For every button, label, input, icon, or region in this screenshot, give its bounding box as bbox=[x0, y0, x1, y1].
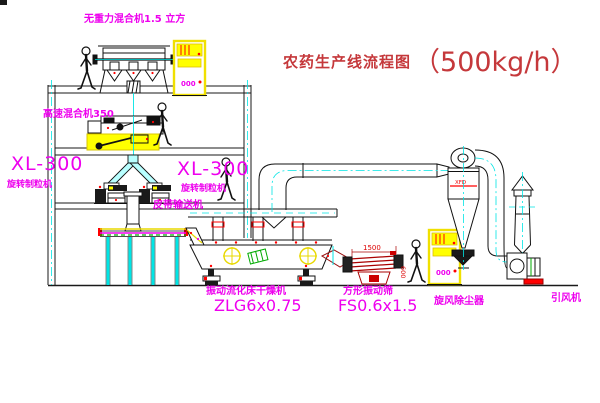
granulator-left-drawing bbox=[94, 185, 128, 204]
dryer-mount-right bbox=[298, 269, 315, 285]
y-chute bbox=[104, 155, 162, 189]
person-roof bbox=[78, 47, 95, 89]
fluid-bed-dryer-drawing bbox=[186, 217, 332, 269]
belt-conveyor-drawing bbox=[98, 228, 188, 285]
label-dryer-model: ZLG6x0.75 bbox=[214, 298, 302, 314]
screen-dim-length: 1500 bbox=[363, 244, 381, 252]
cyclone-drawing bbox=[448, 146, 479, 270]
high-speed-mixer-drawing bbox=[87, 116, 163, 150]
label-granulator-right-model: XL-300 bbox=[177, 160, 249, 179]
discharge-chute bbox=[124, 192, 142, 231]
exhaust-stack bbox=[509, 172, 536, 262]
label-granulator-left-model: XL-300 bbox=[11, 155, 83, 174]
cabinet-2-text: 000 bbox=[436, 269, 451, 277]
dryer-mount-left bbox=[203, 269, 220, 285]
label-granulator-right-name: 旋转制粒机 bbox=[181, 185, 226, 194]
flow-diagram-canvas: 000 000 bbox=[0, 0, 600, 403]
screen-dim-height: 600 bbox=[399, 266, 407, 278]
label-gravity-mixer: 无重力混合机1.5 立方 bbox=[84, 15, 185, 25]
title-text: 农药生产线流程图 bbox=[283, 51, 411, 72]
corner-mark bbox=[0, 0, 7, 5]
person-ground bbox=[408, 240, 425, 282]
label-fan: 引风机 bbox=[551, 294, 581, 304]
label-granulator-left-name: 旋转制粒机 bbox=[7, 181, 52, 190]
cyclone-tag: XFD bbox=[455, 180, 466, 186]
label-screen-model: FS0.6x1.5 bbox=[338, 298, 417, 314]
fan-drawing bbox=[507, 253, 543, 284]
label-cyclone: 旋风除尘器 bbox=[434, 297, 484, 307]
fan-suction-duct bbox=[475, 150, 507, 268]
label-high-speed-mixer: 高速混合机350 bbox=[43, 110, 114, 120]
title-capacity: （500kg/h） bbox=[413, 40, 578, 79]
diagram-title: 农药生产线流程图 （500kg/h） bbox=[283, 40, 578, 79]
label-belt-conveyor: 皮带输送机 bbox=[153, 201, 203, 211]
cabinet-1-text: 000 bbox=[181, 80, 196, 88]
